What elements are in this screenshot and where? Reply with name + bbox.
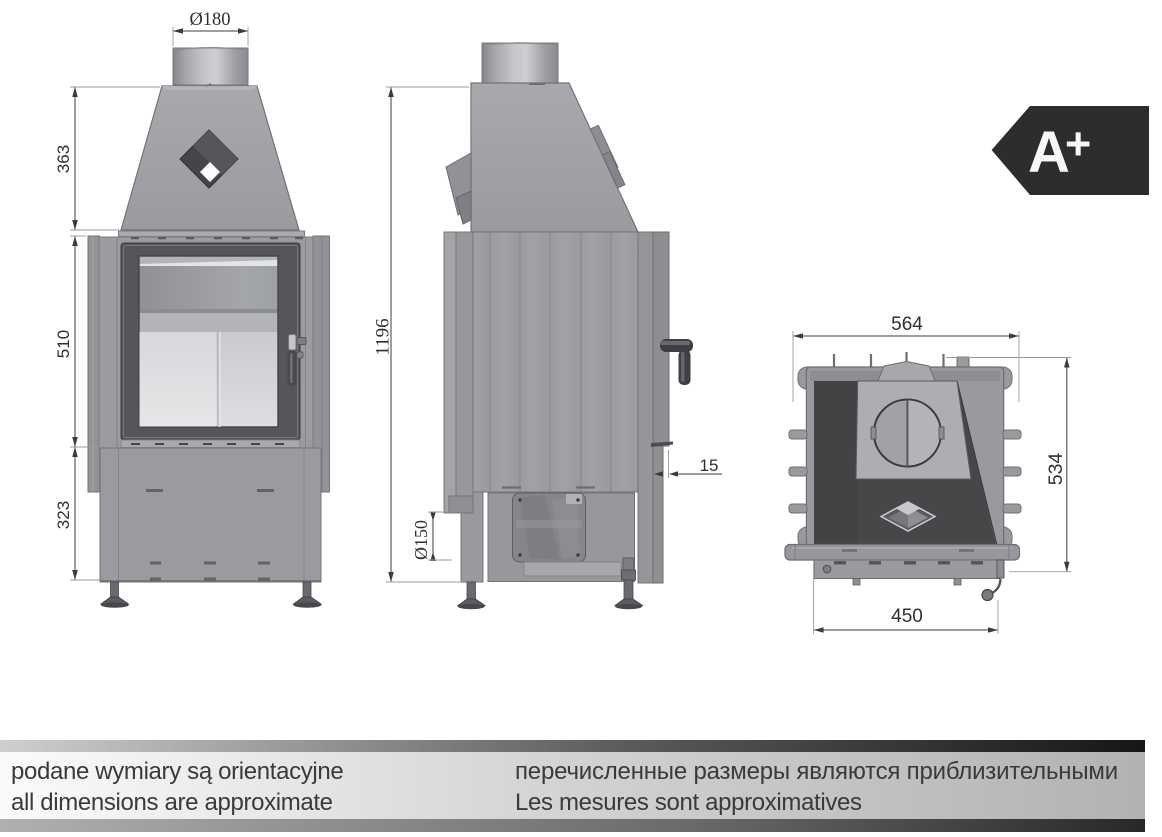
svg-text:1196: 1196 [373, 318, 394, 355]
svg-text:all dimensions are approximate: all dimensions are approximate [11, 789, 333, 816]
svg-text:A: A [1028, 120, 1070, 185]
svg-text:15: 15 [700, 456, 719, 475]
svg-text:323: 323 [54, 501, 73, 529]
svg-text:Les mesures sont approximative: Les mesures sont approximatives [515, 789, 862, 816]
svg-text:363: 363 [54, 145, 73, 173]
svg-text:podane wymiary są orientacyjne: podane wymiary są orientacyjne [11, 758, 343, 785]
svg-text:510: 510 [54, 330, 73, 358]
svg-text:450: 450 [891, 606, 923, 627]
svg-text:перечисленные размеры являются: перечисленные размеры являются приблизит… [515, 758, 1118, 785]
svg-text:564: 564 [891, 314, 923, 335]
svg-text:534: 534 [1045, 453, 1067, 486]
svg-text:Ø150: Ø150 [411, 520, 431, 560]
svg-text:Ø180: Ø180 [189, 10, 230, 30]
svg-text:+: + [1065, 118, 1091, 169]
